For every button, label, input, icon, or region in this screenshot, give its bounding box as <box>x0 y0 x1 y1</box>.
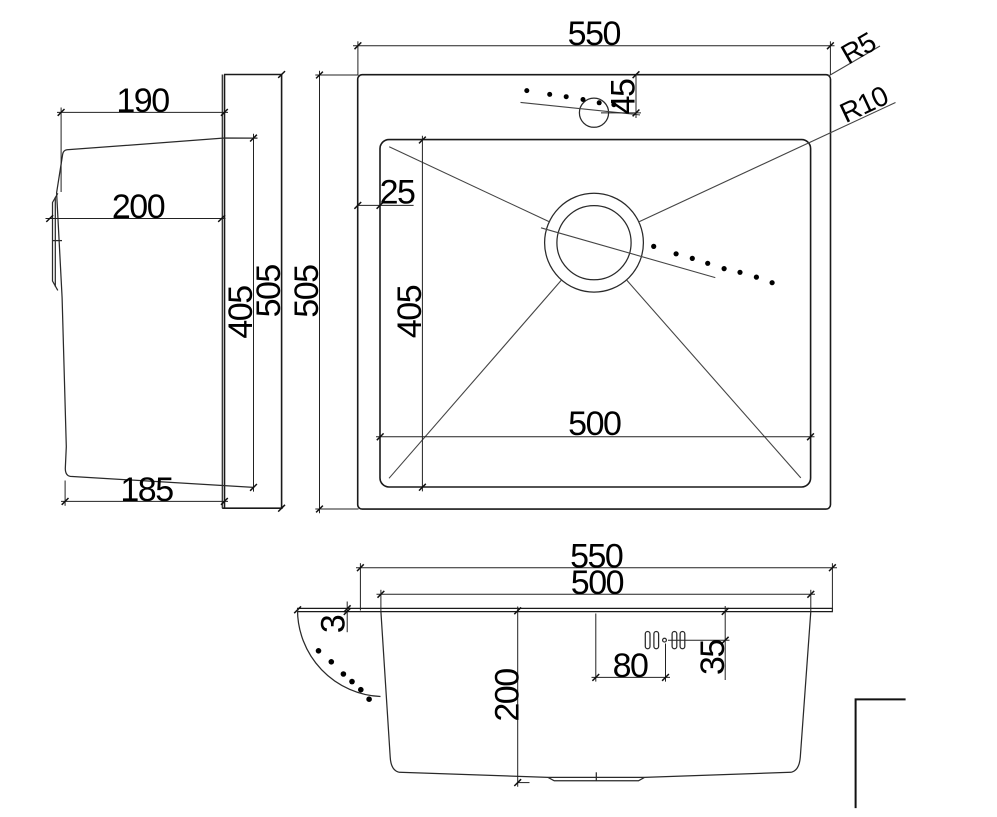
svg-text:505: 505 <box>288 265 326 318</box>
svg-text:500: 500 <box>571 564 624 602</box>
svg-text:185: 185 <box>120 471 173 509</box>
svg-text:25: 25 <box>380 173 415 211</box>
svg-text:R5: R5 <box>836 26 881 70</box>
svg-text:190: 190 <box>116 82 169 120</box>
svg-text:35: 35 <box>694 640 732 675</box>
svg-text:45: 45 <box>605 79 643 114</box>
svg-text:500: 500 <box>568 405 621 443</box>
svg-text:200: 200 <box>112 188 165 226</box>
svg-text:405: 405 <box>391 285 429 338</box>
svg-text:505: 505 <box>250 265 288 318</box>
svg-text:R10: R10 <box>835 80 893 129</box>
svg-text:200: 200 <box>488 669 526 722</box>
svg-text:550: 550 <box>568 15 621 53</box>
svg-text:3: 3 <box>315 615 353 633</box>
svg-text:80: 80 <box>613 647 648 685</box>
